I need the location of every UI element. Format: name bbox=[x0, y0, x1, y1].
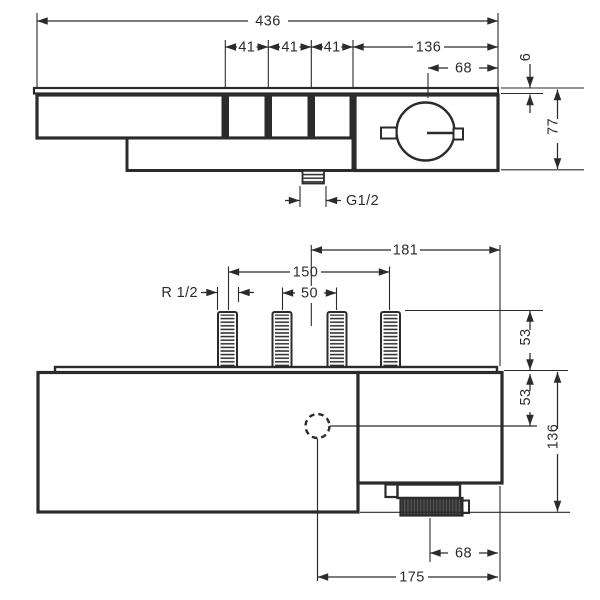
dim-label: 68 bbox=[455, 61, 472, 77]
pipe-thread-hatch bbox=[275, 315, 289, 368]
dim-label: 150 bbox=[293, 265, 318, 281]
knob-left-tab bbox=[381, 128, 397, 139]
drawing-canvas: 436 41 41 41 136 68 bbox=[0, 0, 600, 600]
thermostat-knob bbox=[397, 103, 455, 161]
dim-plate-thickness: 6 bbox=[501, 53, 584, 113]
outlet-plate bbox=[398, 485, 461, 499]
hidden-outlet-circle bbox=[306, 414, 330, 438]
dim-label: 77 bbox=[546, 118, 562, 135]
knob-right-tab bbox=[454, 129, 464, 140]
dim-body-height: 77 bbox=[501, 90, 584, 170]
dim-pipe-thread: R 1/2 bbox=[161, 285, 254, 310]
knurled-knob bbox=[401, 498, 463, 516]
dim-label: 136 bbox=[416, 40, 441, 56]
dim-label: 436 bbox=[255, 14, 280, 30]
thermostat-housing-plan bbox=[358, 373, 502, 484]
dim-label: 50 bbox=[301, 286, 318, 302]
pipe-thread-hatch bbox=[384, 315, 398, 368]
dim-outlet-center-to-edge: 175 bbox=[318, 570, 499, 586]
outlet-nipple bbox=[303, 171, 325, 184]
pipe-thread-hatch bbox=[330, 315, 344, 368]
dim-label: 53 bbox=[518, 329, 534, 346]
valve-body-front bbox=[37, 95, 355, 138]
technical-drawing: 436 41 41 41 136 68 bbox=[0, 0, 600, 600]
button-divider bbox=[222, 95, 230, 138]
valve-body-plan bbox=[38, 373, 358, 513]
dim-outlet-thread: G1/2 bbox=[285, 186, 379, 209]
dim-label: 41 bbox=[281, 40, 298, 56]
outlet-step bbox=[386, 485, 398, 498]
bottom-outlet bbox=[386, 485, 470, 516]
knob-side-tab bbox=[463, 501, 470, 514]
top-view: 436 41 41 41 136 68 bbox=[34, 13, 584, 209]
dim-label: 175 bbox=[399, 570, 424, 586]
dim-label: 6 bbox=[518, 53, 534, 61]
dim-label: 41 bbox=[238, 40, 255, 56]
dim-label: 136 bbox=[546, 424, 562, 449]
dim-center-depth: 53 bbox=[518, 374, 534, 426]
lower-housing bbox=[127, 138, 353, 171]
supply-pipes bbox=[218, 312, 400, 368]
dim-label: G1/2 bbox=[346, 193, 379, 209]
button-divider bbox=[308, 95, 316, 138]
dim-label: R 1/2 bbox=[161, 285, 198, 301]
bottom-view: 181 150 50 R 1/2 bbox=[38, 243, 570, 586]
dim-label: 181 bbox=[393, 243, 418, 259]
button-divider bbox=[265, 95, 273, 138]
dim-label: 53 bbox=[518, 389, 534, 406]
dim-pipe-length: 53 bbox=[405, 311, 568, 371]
pipe-thread-hatch bbox=[221, 315, 235, 368]
dim-label: 41 bbox=[324, 40, 341, 56]
dim-label: 68 bbox=[455, 546, 472, 562]
